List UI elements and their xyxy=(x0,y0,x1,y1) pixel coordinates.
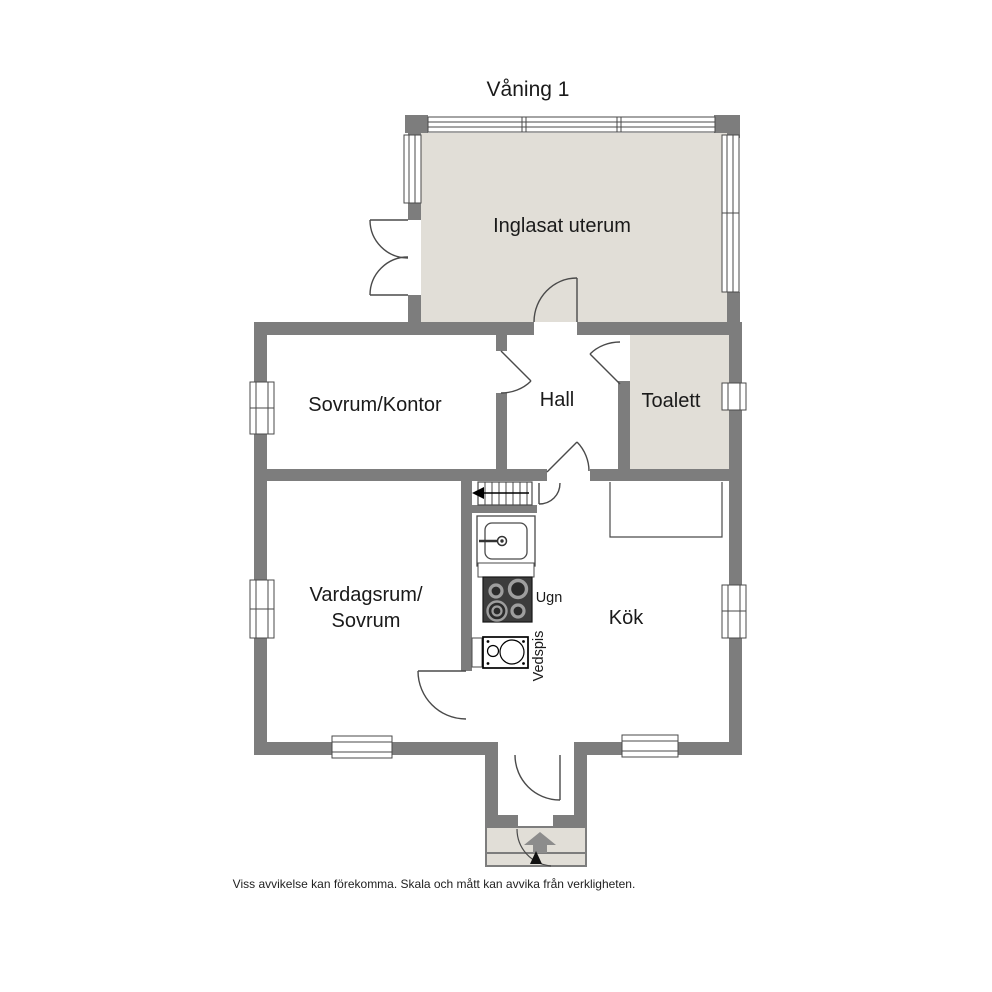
room-label-toalett: Toalett xyxy=(642,388,701,414)
uterum-corner-top-right xyxy=(714,115,740,133)
fixture-label-vedspis: Vedspis xyxy=(526,631,552,682)
kok-window-right xyxy=(722,585,746,638)
door-sovrum xyxy=(501,351,531,393)
uterum-left-window xyxy=(404,135,421,203)
uterum-top-window xyxy=(428,117,715,132)
hall-wall-stub xyxy=(496,335,507,351)
middle-wall-right xyxy=(590,469,729,481)
disclaimer-text: Viss avvikelse kan förekomma. Skala och … xyxy=(233,871,636,897)
uterum-right-wall-bottom xyxy=(727,292,740,322)
sovrum-hall-wall xyxy=(496,393,507,469)
burner xyxy=(510,581,527,598)
vestibule-left-wall xyxy=(485,742,498,827)
page-title: Våning 1 xyxy=(487,77,570,103)
uterum-right-window xyxy=(722,135,739,292)
counter xyxy=(478,563,534,577)
vardagsrum-window-left xyxy=(250,580,274,638)
burner xyxy=(512,605,524,617)
kok-closet-outline xyxy=(610,482,722,537)
uterum-left-wall-bottom xyxy=(408,295,421,322)
top-wall-left xyxy=(254,322,534,335)
door-vestibule xyxy=(515,755,560,800)
vestibule-stub-right xyxy=(553,815,574,827)
room-label-vardagsrum-line1: Vardagsrum/ xyxy=(309,582,422,608)
door-hall-kok xyxy=(547,442,589,472)
french-doors-uterum xyxy=(370,220,408,295)
floor-fills xyxy=(421,133,729,469)
vestibule-stub-left xyxy=(498,815,518,827)
room-label-vardagsrum: Vardagsrum/ Sovrum xyxy=(309,582,422,634)
uterum-left-wall-mid xyxy=(408,203,421,220)
toalett-window xyxy=(722,383,746,410)
room-label-vardagsrum-line2: Sovrum xyxy=(309,608,422,634)
uterum-corner-top-left xyxy=(405,115,428,133)
room-label-hall: Hall xyxy=(540,387,574,413)
floor-plan-drawing xyxy=(0,0,992,992)
door-vardagsrum-kok xyxy=(418,671,466,719)
stove xyxy=(483,577,532,622)
door-stairs xyxy=(539,483,560,504)
room-label-sovrum-kontor: Sovrum/Kontor xyxy=(308,392,441,418)
room-label-kok: Kök xyxy=(609,605,643,631)
burner xyxy=(490,585,502,597)
fixture-label-ugn: Ugn xyxy=(536,585,563,611)
vardagsrum-kok-wall xyxy=(461,469,472,671)
sink xyxy=(477,516,535,566)
kok-window-bottom xyxy=(622,735,678,757)
stairs xyxy=(472,482,532,505)
hall-toalett-wall xyxy=(618,381,630,469)
stairs-wall xyxy=(470,505,537,513)
sovrum-window xyxy=(250,382,274,434)
vestibule-right-wall xyxy=(574,742,587,827)
room-label-uterum: Inglasat uterum xyxy=(493,213,631,239)
vardagsrum-window-bottom xyxy=(332,736,392,758)
door-toalett xyxy=(590,342,620,384)
wood-stove xyxy=(472,637,528,668)
top-wall-right xyxy=(577,322,742,335)
middle-wall-left xyxy=(260,469,547,481)
entrance-porch xyxy=(486,827,586,866)
floor-plan: Våning 1 Inglasat uterum Sovrum/Kontor H… xyxy=(0,0,992,992)
